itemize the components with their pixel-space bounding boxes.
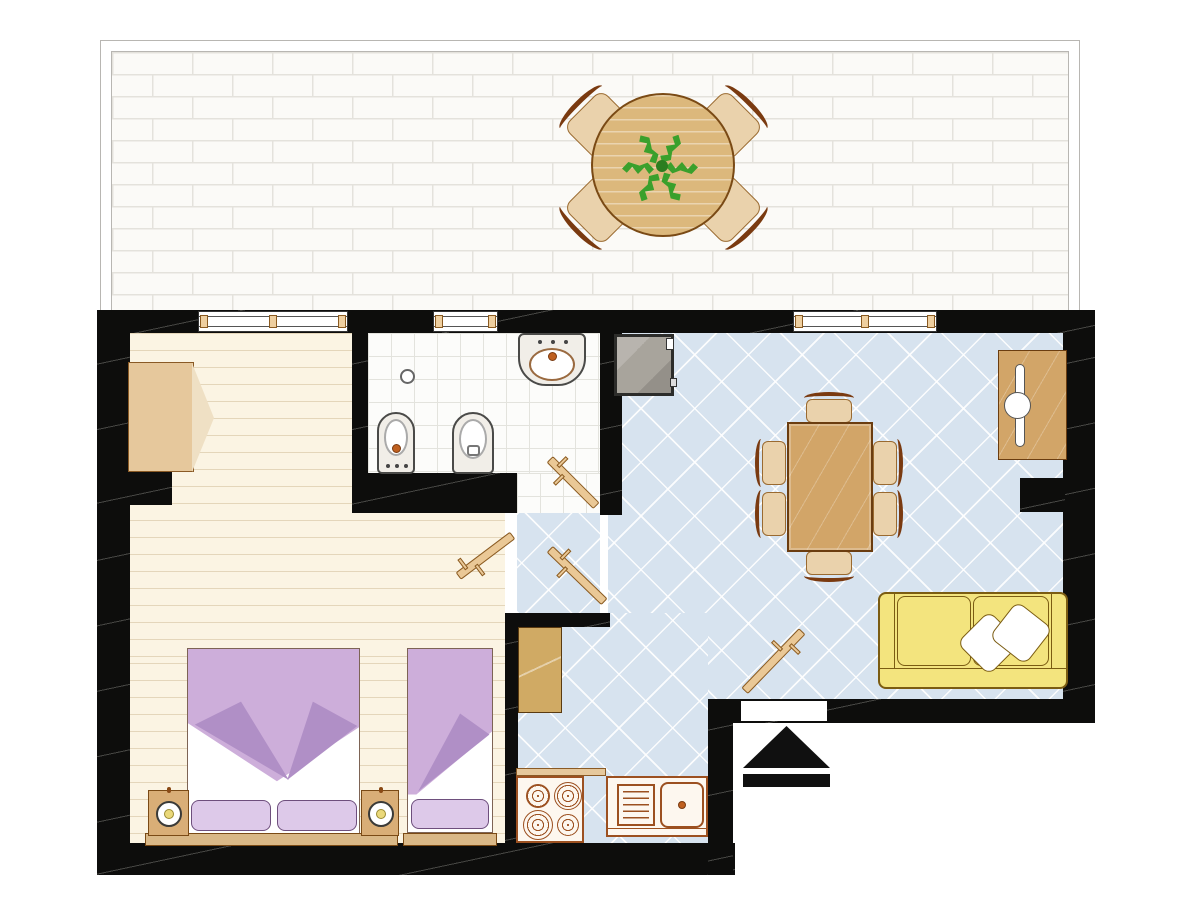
wall-bathroom-left [352, 333, 368, 473]
stove-burner [557, 814, 579, 836]
sink-knob [564, 340, 568, 344]
stove [516, 776, 584, 843]
window-mullion [200, 315, 208, 328]
desk-knob [1004, 392, 1031, 419]
washer-dial [666, 338, 674, 350]
plant-leaf [666, 162, 698, 174]
sink-faucet [548, 352, 557, 361]
window-mullion [488, 315, 496, 328]
sofa-cushion [897, 596, 971, 666]
potted-plant [620, 128, 704, 208]
plant-leaf [636, 170, 662, 204]
dining-table [787, 422, 873, 552]
sink-knob [538, 340, 542, 344]
toilet-flush [467, 445, 480, 456]
bathroom-sink [518, 333, 586, 386]
sofa-arm-left [880, 594, 895, 668]
toilet [452, 412, 494, 474]
single-bed-frame [403, 833, 497, 846]
bedroom-window [198, 311, 348, 332]
opening-bedroom [505, 515, 517, 611]
bidet-knob [404, 464, 408, 468]
kitchen-counter [606, 776, 708, 837]
wall-left [97, 333, 130, 875]
bed-pillow [191, 800, 271, 831]
drainer [617, 784, 655, 826]
lamp-bulb [164, 809, 174, 819]
window-mullion [435, 315, 443, 328]
double-bed [187, 648, 360, 835]
bidet-knob [386, 464, 390, 468]
washer-foot [670, 378, 677, 387]
opening-entrance [741, 701, 827, 721]
plant-leaf [658, 170, 684, 204]
entrance-arrow-icon [743, 726, 830, 768]
sofa [878, 592, 1068, 689]
dining-chair-right [873, 492, 897, 536]
window-mullion [269, 315, 277, 328]
dining-chair-left [762, 441, 786, 485]
bidet-knob [395, 464, 399, 468]
dining-chair-right [873, 441, 897, 485]
kitchen-shelf [516, 768, 606, 776]
desk [998, 350, 1067, 460]
living-window [793, 311, 937, 332]
wall-step [708, 699, 733, 875]
bidet [377, 412, 415, 474]
window-mullion [861, 315, 869, 328]
window-mullion [927, 315, 935, 328]
nightstand-left [148, 790, 189, 836]
wall-pier-left [97, 472, 172, 505]
wall-hall-bottom [505, 613, 610, 627]
window-mullion [795, 315, 803, 328]
floor-plan [0, 0, 1200, 900]
plant-leaf [622, 162, 654, 174]
plant-center [656, 160, 668, 172]
dining-chair-top [806, 399, 852, 423]
dining-chair-left [762, 492, 786, 536]
bathroom-window [433, 311, 498, 332]
sofa-back [880, 668, 1066, 687]
wall-pier-right [1020, 478, 1065, 512]
lamp-bulb [376, 809, 386, 819]
single-bed [407, 648, 493, 833]
entrance-arrow-base [743, 774, 830, 787]
dining-chair-bottom [806, 551, 852, 575]
counter-ledge [608, 828, 706, 829]
bidet-faucet [392, 444, 401, 453]
stove-burner [554, 782, 582, 810]
stove-burner [523, 810, 553, 840]
hall-cabinet [518, 627, 562, 713]
sink-drain [678, 801, 686, 809]
sofa-arm-right [1051, 594, 1066, 668]
floor-drain [400, 369, 415, 384]
wardrobe [128, 362, 194, 472]
lamp-stem [379, 787, 383, 793]
wall-bottom-left [97, 843, 735, 875]
washing-machine [614, 334, 674, 396]
bed-pillow [277, 800, 357, 831]
lamp-stem [167, 787, 171, 793]
stove-burner [526, 784, 550, 808]
wall-bathroom-bottom [352, 473, 517, 513]
bed-pillow [411, 799, 489, 829]
sink-knob [551, 340, 555, 344]
nightstand-right [361, 790, 399, 836]
window-mullion [338, 315, 346, 328]
